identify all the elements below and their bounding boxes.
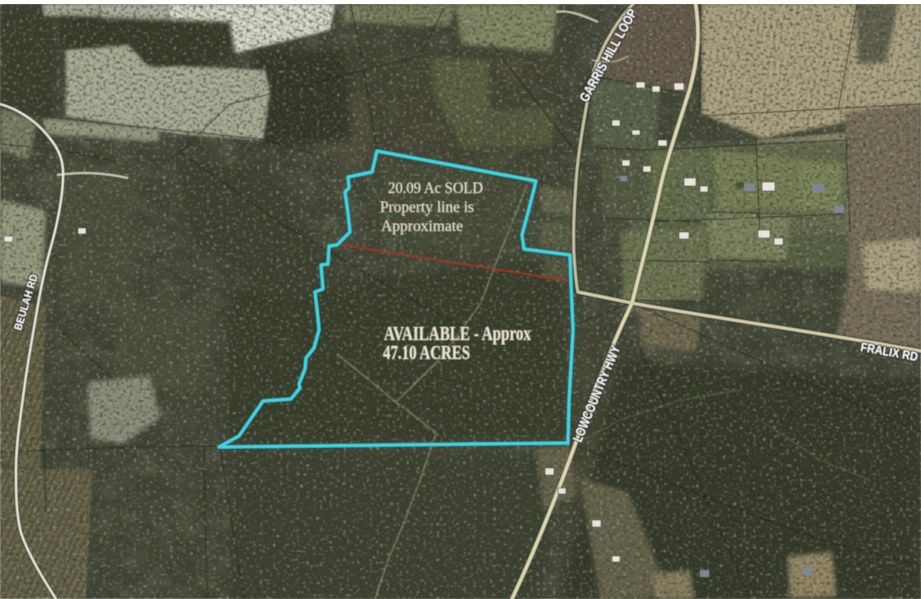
svg-text:47.10 ACRES: 47.10 ACRES [383, 342, 470, 364]
svg-text:Property line is: Property line is [380, 199, 474, 216]
svg-text:20.09 Ac SOLD: 20.09 Ac SOLD [388, 180, 483, 197]
svg-text:Approximate: Approximate [381, 218, 463, 235]
